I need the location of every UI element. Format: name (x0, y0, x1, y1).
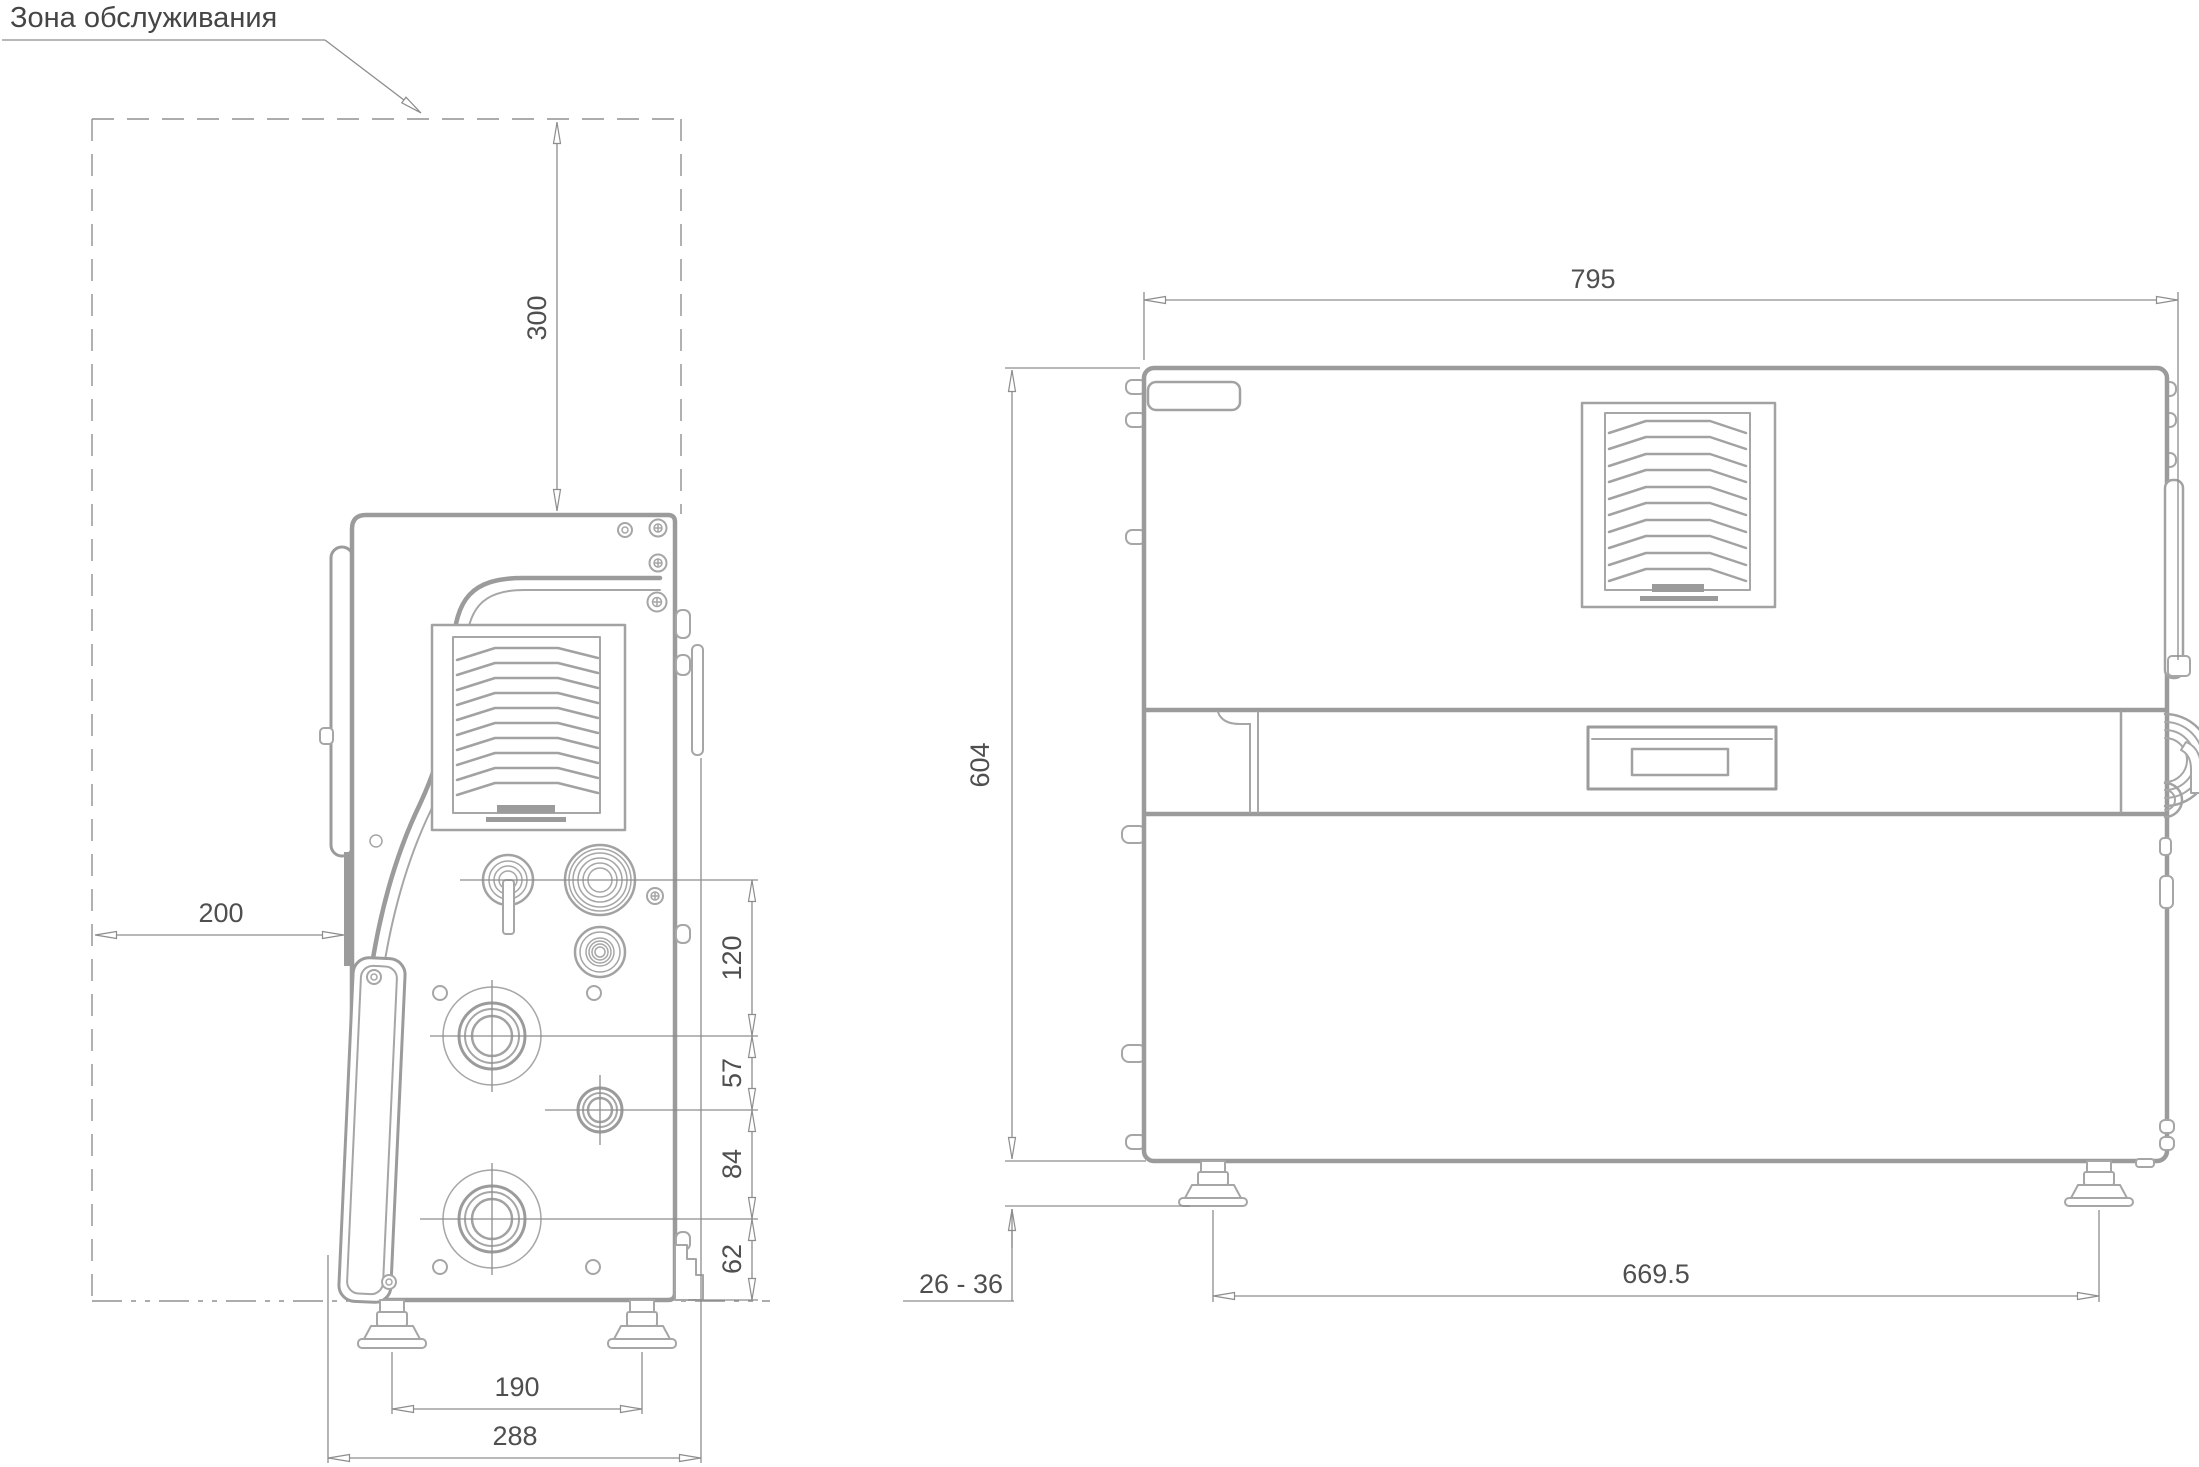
dim-669-5-label: 669.5 (1622, 1259, 1690, 1289)
dim-190: 190 (392, 1352, 642, 1414)
dim-795-label: 795 (1570, 264, 1615, 294)
dim-200-label: 200 (198, 898, 243, 928)
dim-84-label: 84 (717, 1149, 747, 1179)
switch-lever[interactable] (503, 880, 514, 934)
side-tab-4 (2160, 1137, 2174, 1150)
side-foot-left (1179, 1161, 1247, 1206)
side-tab-1 (2160, 838, 2171, 855)
dim-26-36: 26 - 36 (903, 1206, 1190, 1301)
dim-604-label: 604 (965, 742, 995, 787)
right-latch-3 (676, 925, 690, 943)
side-rail (2165, 480, 2183, 678)
base-tab (2136, 1159, 2154, 1167)
front-grille (432, 625, 625, 830)
dim-300-label: 300 (522, 295, 552, 340)
side-foot-right (2065, 1161, 2133, 1206)
service-zone-label: Зона обслуживания (10, 2, 277, 34)
right-latch-1 (676, 610, 690, 638)
front-foot-left (358, 1300, 426, 1348)
side-rail-edge (692, 645, 703, 755)
fan-tab (1652, 584, 1704, 592)
dim-62-label: 62 (717, 1244, 747, 1274)
leader-line (325, 40, 421, 113)
dim-57-label: 57 (717, 1058, 747, 1088)
technical-drawing-page: Зона обслуживания 300 200 120 57 (0, 0, 2199, 1467)
handle-top-bracket (331, 547, 353, 856)
side-view (1122, 368, 2199, 1206)
dim-190-label: 190 (494, 1372, 539, 1402)
dim-604: 604 (965, 368, 1146, 1161)
dimension-drawing: Зона обслуживания 300 200 120 57 (0, 0, 2199, 1467)
screw-icon (382, 1275, 396, 1289)
screw-icon (367, 970, 381, 984)
dim-300: 300 (522, 122, 557, 511)
dim-200: 200 (95, 898, 344, 935)
title-callout: Зона обслуживания (2, 2, 421, 113)
dim-26-36-label: 26 - 36 (919, 1269, 1003, 1299)
fan-tab-base (486, 817, 566, 822)
front-foot-right (608, 1300, 676, 1348)
fan-tab (497, 805, 555, 813)
corner-bracket (675, 1245, 703, 1300)
handle-bracket-tab (320, 728, 333, 744)
dim-120-label: 120 (717, 935, 747, 980)
grille-frame (432, 625, 625, 830)
dim-669-5: 669.5 (1213, 1210, 2099, 1302)
right-latch-2 (676, 655, 690, 675)
side-tab-3 (2160, 1120, 2174, 1133)
torch-tube (2181, 742, 2199, 793)
front-view (320, 515, 703, 1348)
dim-288-label: 288 (492, 1421, 537, 1451)
rail-foot (2168, 656, 2190, 676)
side-tab-2 (2160, 876, 2173, 908)
fan-tab-base (1640, 596, 1718, 601)
